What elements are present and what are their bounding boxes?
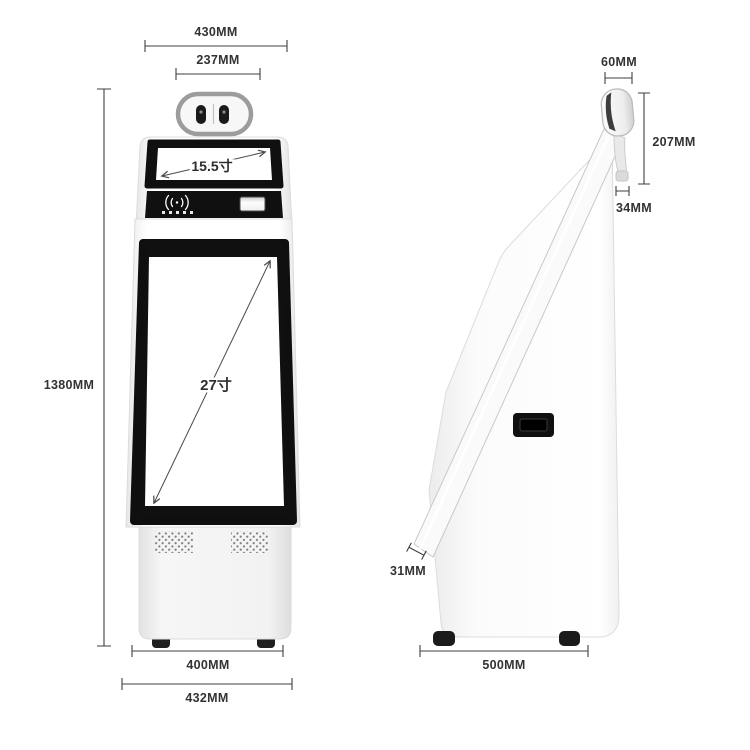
dim-line-432mm — [122, 678, 292, 690]
side-foot-back — [559, 631, 580, 646]
dim-head-screen-height: 207MM — [638, 93, 696, 184]
camera-housing — [178, 94, 251, 134]
kiosk-dimension-diagram: 430MM 237MM 1380MM 15.5寸 — [0, 0, 750, 750]
dim-line-1380mm — [97, 89, 111, 646]
side-foot-front — [433, 631, 455, 646]
dim-top-width: 430MM — [145, 25, 287, 52]
dim-line-34mm — [616, 186, 629, 196]
front-view: 430MM 237MM 1380MM 15.5寸 — [44, 25, 300, 705]
dim-camera-width: 237MM — [176, 53, 260, 80]
dim-head-depth: 60MM — [601, 55, 637, 84]
camera-lens-right-icon — [219, 105, 229, 124]
dim-label-60mm: 60MM — [601, 55, 637, 69]
camera-head-housing — [600, 88, 635, 138]
dim-label-1380mm: 1380MM — [44, 378, 94, 392]
dim-line-60mm — [605, 72, 632, 84]
top-screen-size-label: 15.5寸 — [191, 158, 232, 174]
dim-label-400mm: 400MM — [186, 658, 229, 672]
main-screen-size-label: 27寸 — [200, 376, 232, 394]
receipt-card-slot-icon — [240, 197, 265, 211]
camera-module — [178, 94, 251, 134]
dim-label-207mm: 207MM — [652, 135, 695, 149]
vent-grille-right-icon — [231, 531, 269, 553]
dim-base-width: 432MM — [122, 678, 292, 705]
diagram-canvas: 430MM 237MM 1380MM 15.5寸 — [0, 0, 750, 750]
dim-label-430mm: 430MM — [194, 25, 237, 39]
dim-label-34mm: 34MM — [616, 201, 652, 215]
dim-feet-width: 400MM — [132, 645, 283, 672]
dim-label-500mm: 500MM — [482, 658, 525, 672]
dim-label-432mm: 432MM — [185, 691, 228, 705]
dim-screen-top-thickness: 34MM — [616, 186, 652, 215]
dim-base-depth: 500MM — [420, 645, 588, 672]
camera-head-tail — [616, 171, 628, 181]
side-view: 60MM 207MM 34MM 31MM 500MM — [390, 55, 696, 672]
base-cabinet — [139, 527, 291, 648]
head-unit: 15.5寸 — [136, 137, 292, 226]
dim-label-31mm: 31MM — [390, 564, 426, 578]
dim-label-237mm: 237MM — [196, 53, 239, 67]
camera-lens-right-glint — [222, 110, 225, 113]
dim-line-237mm — [176, 68, 260, 80]
camera-head-neck — [614, 133, 627, 175]
dim-line-500mm — [420, 645, 588, 657]
dim-line-430mm — [145, 40, 287, 52]
main-screen: 27寸 — [134, 243, 293, 521]
vent-grille-left-icon — [155, 531, 193, 553]
nfc-center-dot — [176, 201, 178, 203]
dim-line-207mm — [638, 93, 650, 184]
side-port-slot — [520, 419, 547, 431]
camera-lens-left-glint — [199, 110, 202, 113]
dim-total-height: 1380MM — [44, 89, 111, 646]
camera-lens-left-icon — [196, 105, 206, 124]
